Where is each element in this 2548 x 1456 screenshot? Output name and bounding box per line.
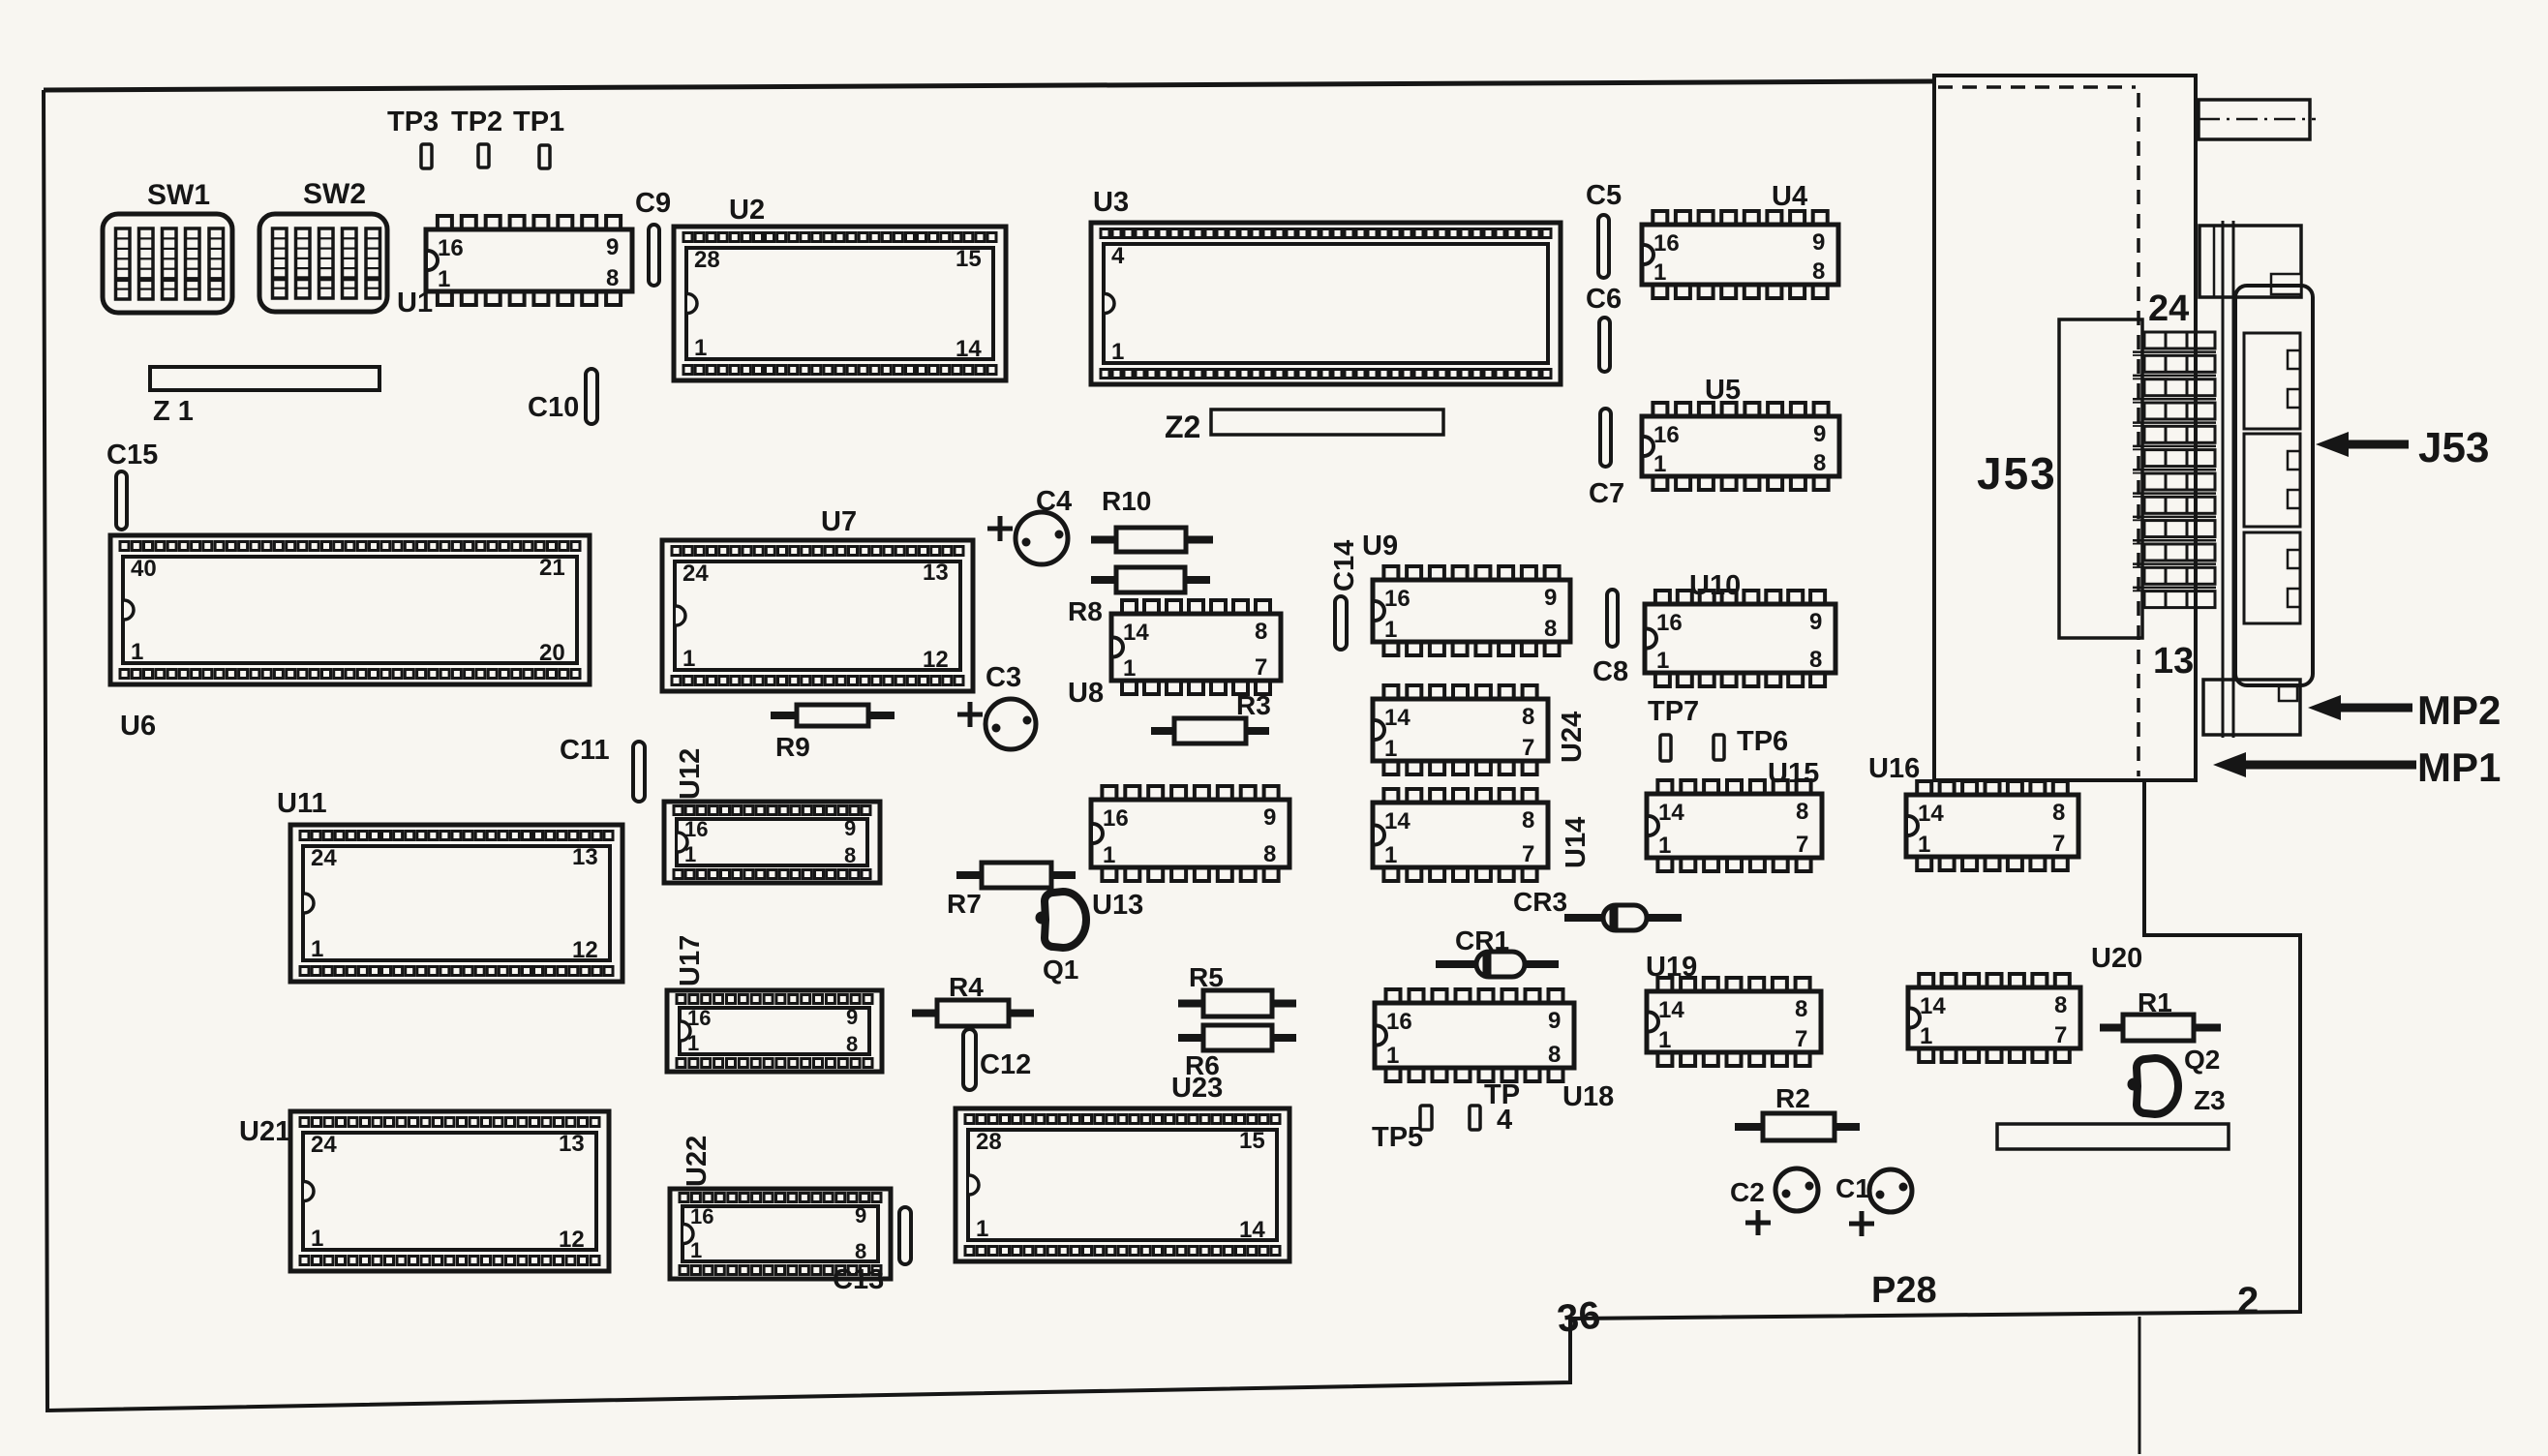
svg-text:8: 8 [1796,799,1808,825]
svg-text:R2: R2 [1775,1083,1810,1113]
svg-text:1: 1 [976,1216,988,1242]
svg-text:16: 16 [1653,230,1680,257]
svg-text:16: 16 [438,235,464,261]
svg-text:1: 1 [694,335,707,361]
svg-text:14: 14 [1384,705,1410,731]
svg-text:16: 16 [1656,610,1683,636]
svg-text:40: 40 [131,556,157,582]
svg-text:36: 36 [1555,1294,1602,1341]
svg-text:12: 12 [923,647,949,673]
svg-text:1: 1 [438,266,450,292]
svg-text:R10: R10 [1102,486,1151,516]
svg-text:20: 20 [539,640,565,666]
svg-text:15: 15 [1239,1128,1265,1154]
svg-text:TP6: TP6 [1737,726,1788,757]
svg-text:7: 7 [2052,831,2065,857]
svg-text:9: 9 [1544,585,1557,611]
svg-text:12: 12 [559,1227,585,1253]
svg-text:R9: R9 [775,732,810,762]
svg-text:24: 24 [311,1132,337,1158]
svg-text:U11: U11 [277,788,327,819]
svg-text:1: 1 [1384,617,1397,643]
svg-text:8: 8 [2052,800,2065,826]
svg-text:Z 1: Z 1 [153,396,194,427]
svg-text:C13: C13 [833,1264,884,1295]
svg-text:8: 8 [1522,704,1534,730]
svg-text:C14: C14 [1329,540,1360,591]
svg-text:1: 1 [682,646,695,672]
svg-text:13: 13 [572,844,598,870]
svg-text:C11: C11 [560,735,610,766]
svg-text:R5: R5 [1189,962,1224,992]
svg-text:8: 8 [1809,647,1822,673]
svg-text:MP1: MP1 [2417,744,2501,790]
svg-text:U8: U8 [1068,678,1104,709]
svg-text:R7: R7 [947,889,982,919]
svg-text:8: 8 [606,265,619,291]
svg-text:24: 24 [682,561,709,587]
svg-text:9: 9 [844,816,856,840]
svg-text:9: 9 [1812,229,1825,256]
svg-text:1: 1 [687,1031,699,1055]
svg-text:U9: U9 [1362,531,1398,561]
svg-text:Z3: Z3 [2194,1085,2226,1115]
svg-text:16: 16 [687,1006,711,1030]
svg-text:U7: U7 [821,506,857,537]
svg-text:J53: J53 [1977,448,2057,499]
svg-text:U18: U18 [1562,1081,1614,1112]
svg-text:TP7: TP7 [1648,696,1699,727]
svg-text:1: 1 [311,936,323,962]
svg-text:16: 16 [690,1204,713,1228]
svg-text:9: 9 [855,1203,866,1228]
svg-text:13: 13 [2153,641,2194,682]
svg-text:9: 9 [846,1005,858,1029]
svg-text:8: 8 [1548,1042,1561,1068]
svg-text:4: 4 [1497,1105,1512,1136]
svg-text:16: 16 [1103,805,1129,832]
svg-text:C10: C10 [528,392,579,423]
svg-text:Q2: Q2 [2184,1045,2220,1075]
svg-text:R8: R8 [1068,596,1103,626]
svg-text:8: 8 [1263,841,1276,867]
svg-text:SW1: SW1 [147,179,210,211]
svg-text:U17: U17 [675,935,706,986]
svg-text:1: 1 [1658,1027,1671,1053]
svg-text:12: 12 [572,937,598,963]
svg-text:C7: C7 [1589,478,1624,509]
svg-text:1: 1 [1918,832,1930,858]
svg-text:14: 14 [1384,808,1410,834]
svg-text:24: 24 [2148,288,2189,329]
svg-text:7: 7 [1522,841,1534,867]
svg-text:9: 9 [606,234,619,260]
svg-text:U21: U21 [239,1116,290,1147]
svg-text:14: 14 [1918,801,1944,827]
svg-text:R4: R4 [949,972,984,1002]
svg-text:C1: C1 [1835,1173,1870,1203]
svg-text:U2: U2 [729,195,765,226]
svg-text:9: 9 [1813,421,1826,447]
svg-text:1: 1 [1658,833,1671,859]
svg-text:7: 7 [2054,1022,2067,1048]
svg-text:15: 15 [955,246,982,272]
svg-text:7: 7 [1795,1026,1807,1052]
svg-text:8: 8 [855,1239,866,1263]
svg-text:8: 8 [1813,450,1826,476]
svg-text:U20: U20 [2091,943,2142,974]
svg-text:U6: U6 [120,711,156,742]
svg-text:U4: U4 [1772,181,1807,212]
svg-text:13: 13 [923,560,949,586]
svg-text:16: 16 [1384,586,1410,612]
svg-text:8: 8 [1522,807,1534,834]
svg-text:C6: C6 [1586,284,1622,315]
svg-text:U23: U23 [1171,1073,1223,1104]
svg-text:2: 2 [2237,1280,2259,1322]
svg-text:U14: U14 [1561,817,1592,868]
svg-text:7: 7 [1522,735,1534,761]
svg-text:1: 1 [1111,339,1124,365]
svg-text:U16: U16 [1868,753,1920,784]
svg-text:1: 1 [1386,1043,1399,1069]
svg-text:1: 1 [1920,1023,1932,1049]
svg-text:J53: J53 [2418,424,2489,471]
svg-text:C8: C8 [1592,656,1628,687]
svg-text:9: 9 [1809,609,1822,635]
svg-text:1: 1 [131,639,143,665]
svg-text:7: 7 [1255,654,1267,681]
svg-text:7: 7 [1796,832,1808,858]
svg-text:MP2: MP2 [2417,687,2501,733]
svg-text:9: 9 [1263,804,1276,831]
svg-text:C5: C5 [1586,180,1622,211]
svg-text:14: 14 [1658,800,1684,826]
svg-text:8: 8 [1544,616,1557,642]
svg-text:16: 16 [1386,1009,1412,1035]
svg-text:8: 8 [846,1032,858,1056]
svg-text:14: 14 [1123,620,1149,646]
svg-text:24: 24 [311,845,337,871]
svg-text:U15: U15 [1768,758,1819,789]
svg-text:U19: U19 [1646,952,1697,983]
svg-text:4: 4 [1111,243,1125,269]
svg-text:8: 8 [1812,258,1825,285]
svg-text:TP3: TP3 [387,106,439,137]
svg-text:U10: U10 [1689,570,1741,601]
svg-text:U12: U12 [675,748,706,800]
svg-text:TP5: TP5 [1372,1122,1423,1153]
svg-text:8: 8 [2054,992,2067,1018]
svg-text:28: 28 [694,247,720,273]
svg-text:Q1: Q1 [1043,955,1078,985]
svg-text:CR1: CR1 [1455,925,1509,955]
svg-text:1: 1 [1653,259,1666,286]
svg-text:C15: C15 [106,440,158,470]
svg-text:TP1: TP1 [513,106,564,137]
svg-text:U5: U5 [1705,375,1741,406]
svg-text:14: 14 [1239,1217,1265,1243]
svg-text:U22: U22 [682,1136,713,1187]
svg-text:9: 9 [1548,1008,1561,1034]
svg-text:1: 1 [1656,648,1669,674]
svg-text:1: 1 [1103,842,1115,868]
svg-text:Z2: Z2 [1165,409,1200,444]
svg-text:R1: R1 [2138,987,2172,1017]
svg-text:C12: C12 [980,1049,1031,1080]
svg-text:8: 8 [1795,996,1807,1022]
svg-text:8: 8 [1255,619,1267,645]
svg-text:U24: U24 [1557,712,1588,763]
svg-text:16: 16 [1653,422,1680,448]
svg-text:14: 14 [955,336,982,362]
svg-text:CR3: CR3 [1513,887,1567,917]
svg-text:U3: U3 [1093,187,1129,218]
svg-text:U1: U1 [397,288,433,318]
svg-text:U13: U13 [1092,890,1143,921]
svg-text:SW2: SW2 [303,178,366,210]
svg-text:13: 13 [559,1131,585,1157]
svg-text:TP2: TP2 [451,106,502,137]
svg-text:14: 14 [1658,997,1684,1023]
svg-text:21: 21 [539,555,565,581]
svg-text:1: 1 [684,842,696,866]
svg-text:8: 8 [844,843,856,867]
svg-text:R3: R3 [1236,690,1271,720]
svg-text:C2: C2 [1730,1177,1765,1207]
svg-text:1: 1 [1384,736,1397,762]
svg-text:C9: C9 [635,188,671,219]
svg-text:1: 1 [311,1226,323,1252]
svg-text:16: 16 [684,817,708,841]
svg-text:1: 1 [1653,451,1666,477]
svg-text:14: 14 [1920,993,1946,1019]
svg-text:28: 28 [976,1129,1002,1155]
svg-text:P28: P28 [1871,1270,1937,1311]
svg-text:1: 1 [1384,842,1397,868]
svg-text:C3: C3 [986,662,1021,693]
svg-text:1: 1 [1123,655,1136,682]
svg-text:1: 1 [690,1238,702,1262]
